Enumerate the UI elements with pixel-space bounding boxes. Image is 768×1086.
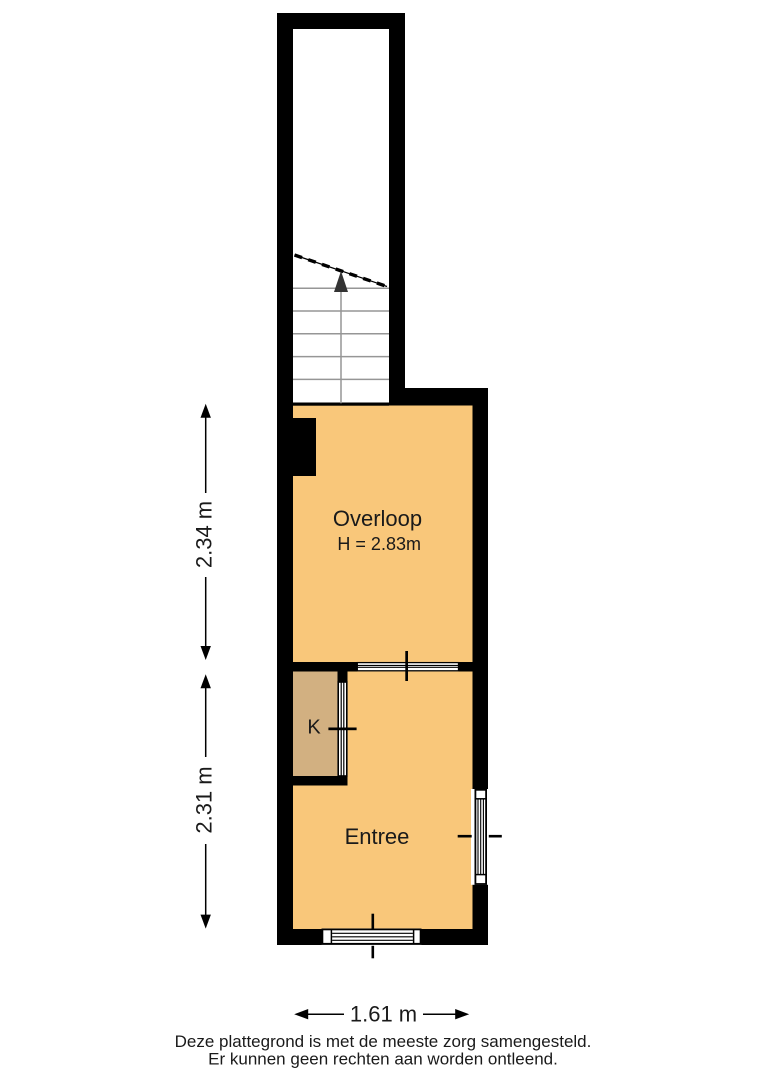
svg-text:H = 2.83m: H = 2.83m <box>337 534 421 554</box>
svg-text:Deze plattegrond is met de mee: Deze plattegrond is met de meeste zorg s… <box>175 1032 592 1051</box>
svg-text:Er kunnen geen rechten aan wor: Er kunnen geen rechten aan worden ontlee… <box>208 1050 558 1069</box>
svg-text:K: K <box>307 717 321 739</box>
svg-text:Overloop: Overloop <box>333 506 422 531</box>
svg-text:Entree: Entree <box>345 824 410 849</box>
svg-text:2.31 m: 2.31 m <box>192 766 217 833</box>
svg-text:2.34 m: 2.34 m <box>192 501 217 568</box>
svg-text:1.61 m: 1.61 m <box>350 1002 417 1027</box>
